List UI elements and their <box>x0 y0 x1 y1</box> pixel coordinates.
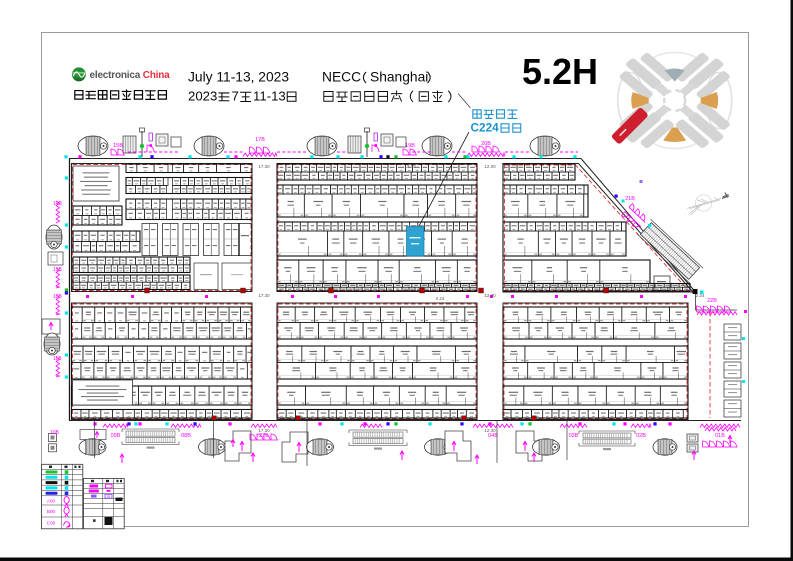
svg-text:22B: 22B <box>707 298 717 304</box>
svg-text:B00: B00 <box>47 509 56 514</box>
svg-text:NECC: NECC <box>322 70 361 85</box>
svg-text:A00: A00 <box>47 498 56 503</box>
svg-text:C00: C00 <box>47 521 56 526</box>
svg-text:17.30: 17.30 <box>258 293 270 298</box>
svg-text:17.00: 17.00 <box>404 164 416 169</box>
svg-text:19B: 19B <box>405 143 415 149</box>
svg-text:2.24: 2.24 <box>436 296 445 301</box>
svg-text:08B: 08B <box>181 433 191 439</box>
svg-text:July 11-13, 2023: July 11-13, 2023 <box>188 70 289 85</box>
svg-text:12B: 12B <box>53 294 63 300</box>
svg-text:02B: 02B <box>636 433 646 439</box>
svg-text:01B: 01B <box>715 433 725 439</box>
svg-text:11B: 11B <box>53 356 62 362</box>
svg-text:13B: 13B <box>53 267 63 273</box>
svg-text:03B: 03B <box>569 433 579 439</box>
svg-text:2023: 2023 <box>188 89 217 104</box>
svg-text:2.24: 2.24 <box>696 293 705 298</box>
svg-text:Shanghai: Shanghai <box>370 70 428 85</box>
svg-text:14B: 14B <box>53 201 63 207</box>
svg-text:17.30: 17.30 <box>258 164 270 169</box>
svg-text:10B: 10B <box>50 430 60 436</box>
svg-text:12.00: 12.00 <box>484 164 496 169</box>
svg-text:11-13: 11-13 <box>253 89 286 104</box>
svg-text:21B: 21B <box>625 196 635 202</box>
svg-text:7: 7 <box>232 89 239 104</box>
svg-text:C224: C224 <box>471 121 500 135</box>
svg-text:15B: 15B <box>113 143 123 149</box>
svg-text:09B: 09B <box>111 433 121 439</box>
svg-text:12.30: 12.30 <box>484 293 496 298</box>
svg-text:electronica China: electronica China <box>90 70 171 81</box>
svg-text:5.2H: 5.2H <box>522 51 598 92</box>
svg-text:17B: 17B <box>255 137 265 143</box>
